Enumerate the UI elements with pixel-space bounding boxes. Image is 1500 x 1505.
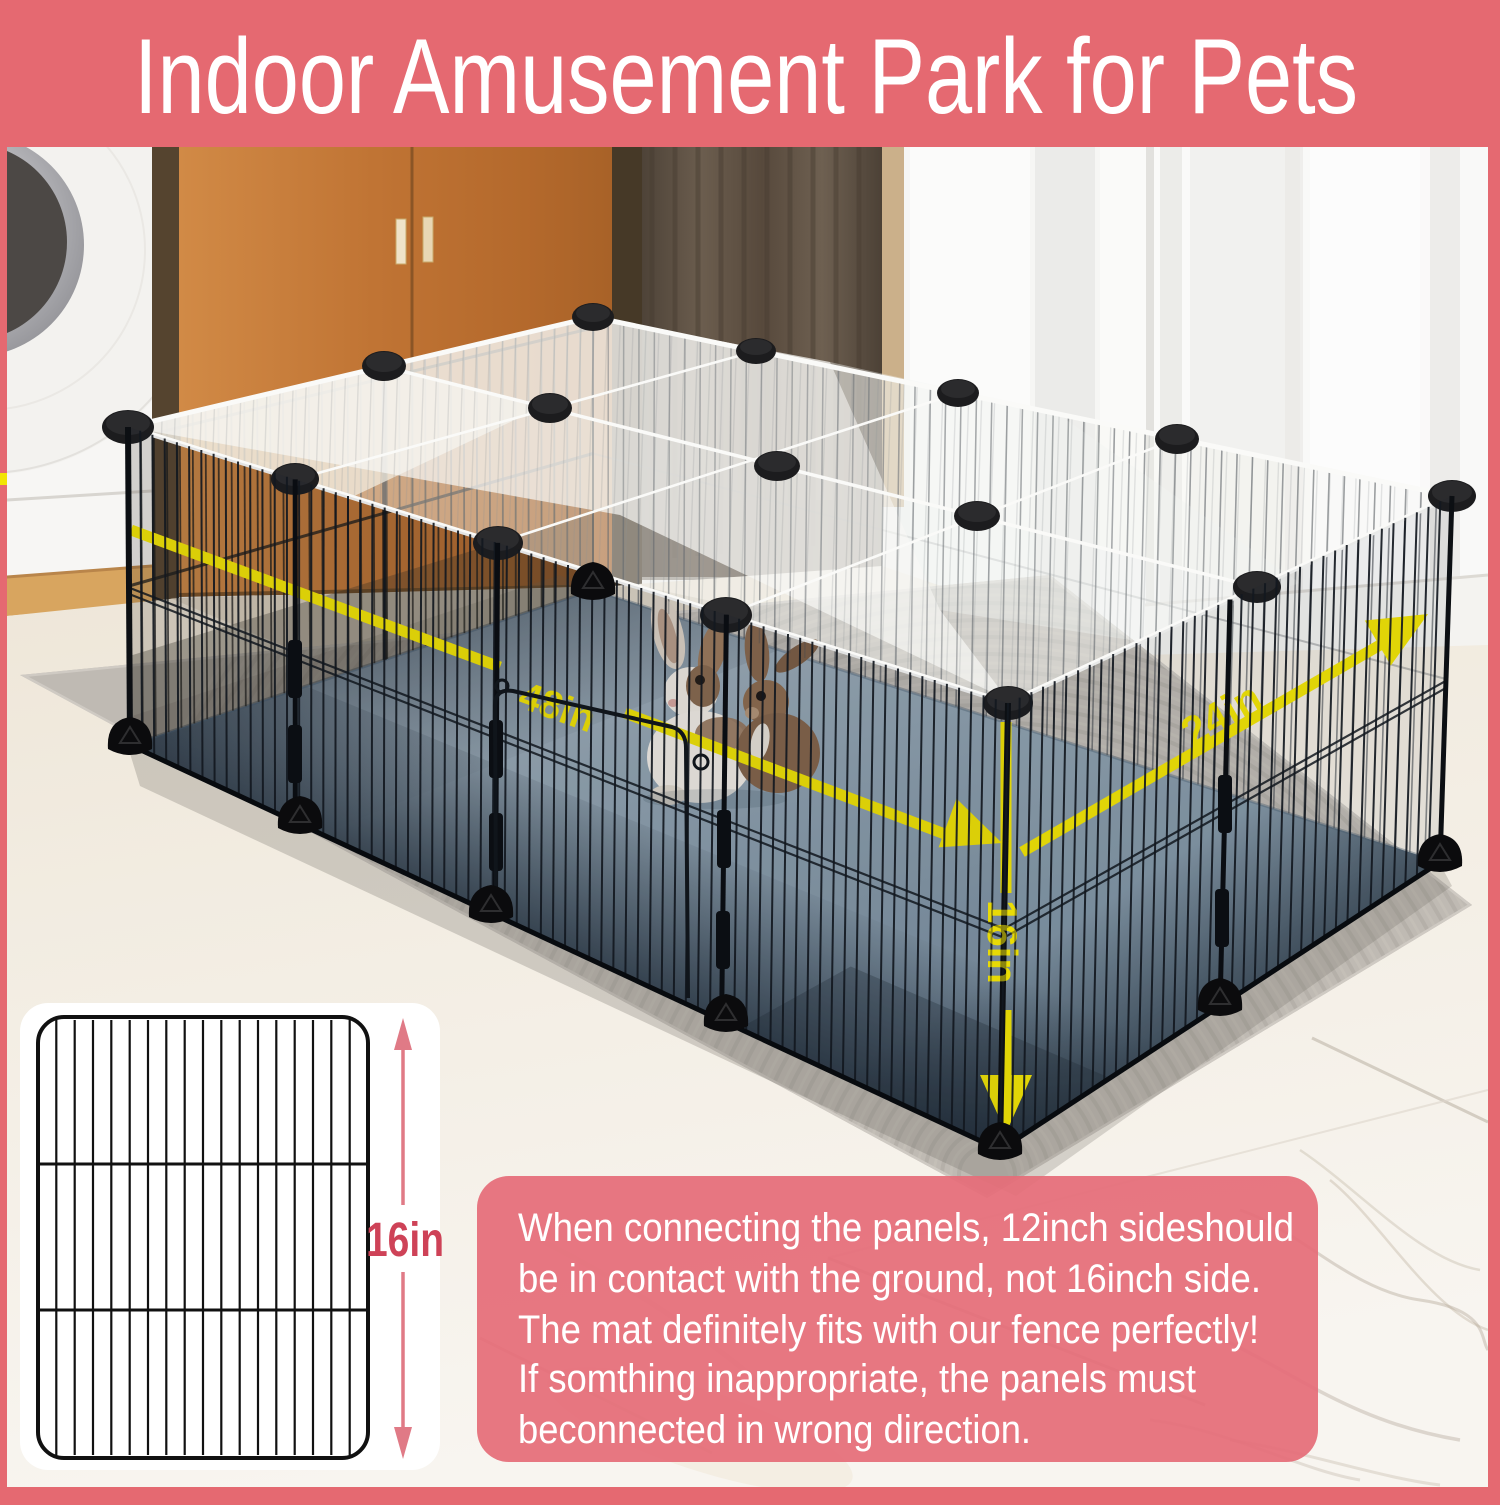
svg-text:beconnected in wrong direction: beconnected in wrong direction.	[518, 1408, 1031, 1452]
svg-text:be in contact with the ground,: be in contact with the ground, not 16inc…	[518, 1257, 1261, 1301]
svg-text:If somthing inappropriate, the: If somthing inappropriate, the panels mu…	[518, 1357, 1196, 1401]
svg-text:The mat definitely fits with o: The mat definitely fits with our fence p…	[518, 1308, 1259, 1352]
svg-text:Indoor Amusement Park for Pets: Indoor Amusement Park for Pets	[134, 16, 1358, 136]
svg-text:When connecting the panels, 12: When connecting the panels, 12inch sides…	[518, 1206, 1294, 1250]
svg-text:16in: 16in	[979, 900, 1026, 984]
svg-text:16in: 16in	[366, 1214, 444, 1267]
